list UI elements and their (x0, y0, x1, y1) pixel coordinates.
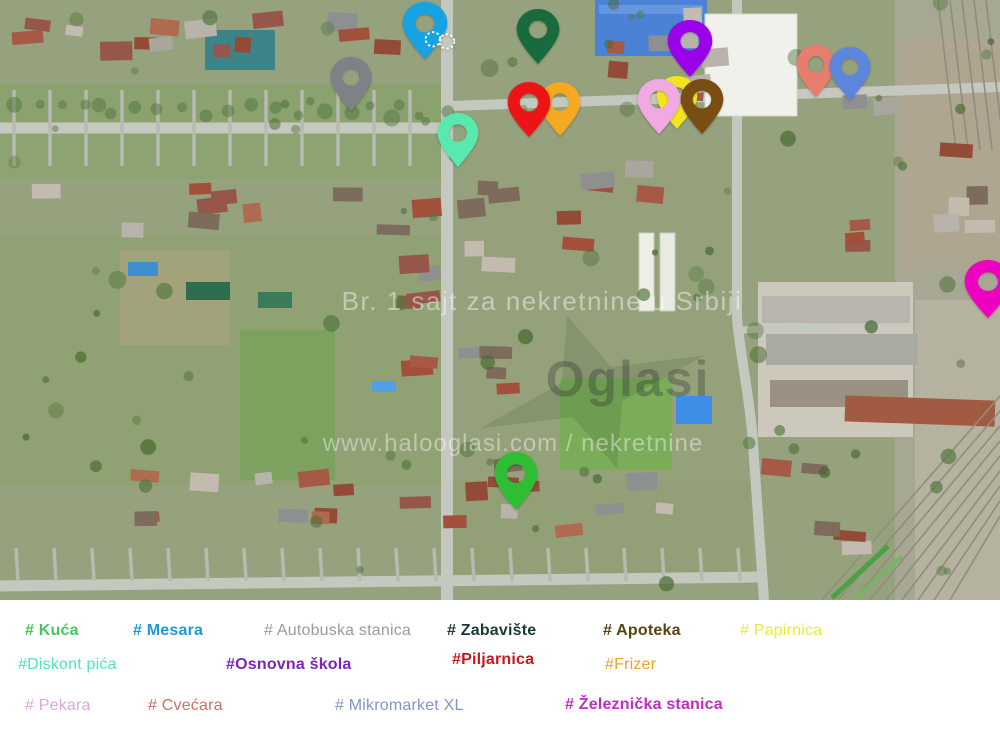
map-pin-zabaviste[interactable] (516, 9, 560, 64)
legend-item-autobuska-stanica: # Autobuska stanica (264, 622, 411, 640)
map-pin-osnovna-skola[interactable] (667, 20, 713, 77)
legend-item-kuca: # Kuća (25, 622, 79, 640)
legend-item-osnovna-skola: #Osnovna škola (226, 656, 352, 674)
map-pin-diskont-pica[interactable] (437, 113, 479, 167)
legend-item-diskont-pica: #Diskont pića (18, 656, 117, 674)
map-pin-piljarnica[interactable] (507, 82, 551, 137)
legend-item-papirnica: # Papirnica (740, 622, 822, 640)
legend-item-frizer: #Frizer (605, 656, 656, 674)
map-pin-zeleznicka-stanica[interactable] (964, 260, 1000, 318)
map-pin-autobuska-stanica[interactable] (330, 57, 372, 111)
map-pin-mikromarket-xl[interactable] (829, 47, 871, 100)
listing-map-image: Br. 1 sajt za nekretnine u Srbiji Oglasi… (0, 0, 1000, 750)
legend: # Kuća# Mesara# Autobuska stanica# Zabav… (0, 600, 1000, 750)
legend-item-piljarnica: #Piljarnica (452, 651, 534, 669)
aerial-map: Br. 1 sajt za nekretnine u Srbiji Oglasi… (0, 0, 1000, 600)
map-pin-kuca[interactable] (494, 452, 538, 510)
map-pin-pekara[interactable] (637, 79, 681, 134)
legend-item-apoteka: # Apoteka (603, 622, 681, 640)
legend-item-zabaviste: # Zabavište (447, 622, 536, 640)
legend-item-mesara: # Mesara (133, 622, 203, 640)
map-pin-mesara[interactable] (402, 2, 448, 59)
map-pin-apoteka[interactable] (680, 79, 724, 134)
legend-item-pekara: # Pekara (25, 697, 91, 715)
legend-item-zeleznicka-stanica: # Železnička stanica (565, 696, 723, 714)
legend-item-mikromarket-xl: # Mikromarket XL (335, 697, 464, 715)
legend-item-cvecara: # Cvećara (148, 697, 223, 715)
